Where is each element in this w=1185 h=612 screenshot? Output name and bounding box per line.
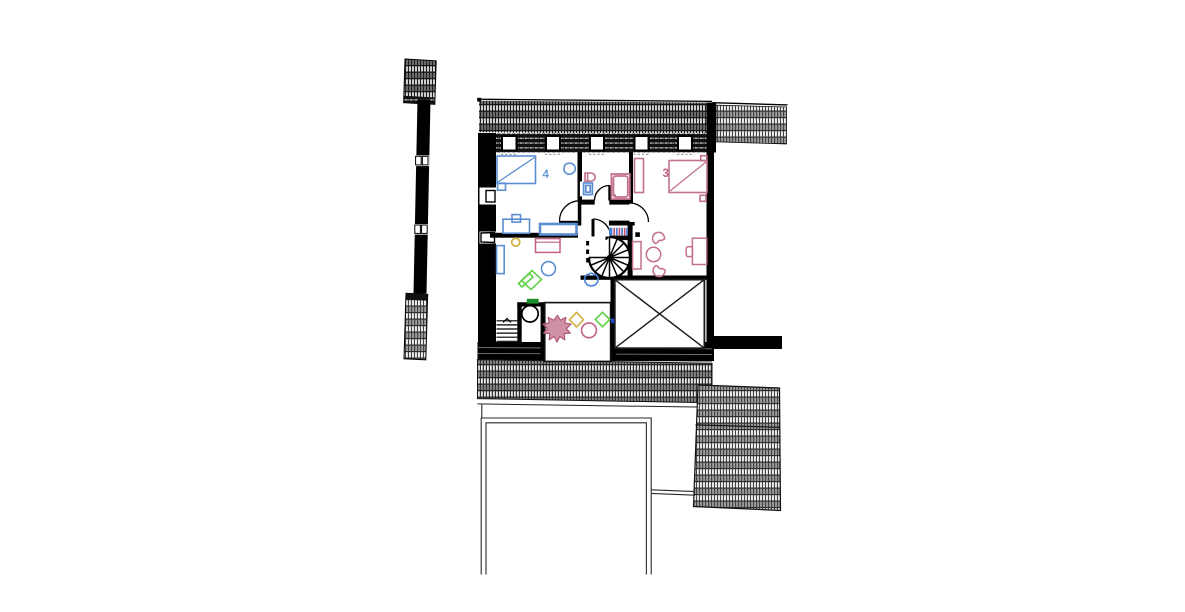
svg-text:4: 4 xyxy=(543,169,550,181)
svg-text:3: 3 xyxy=(663,168,669,180)
